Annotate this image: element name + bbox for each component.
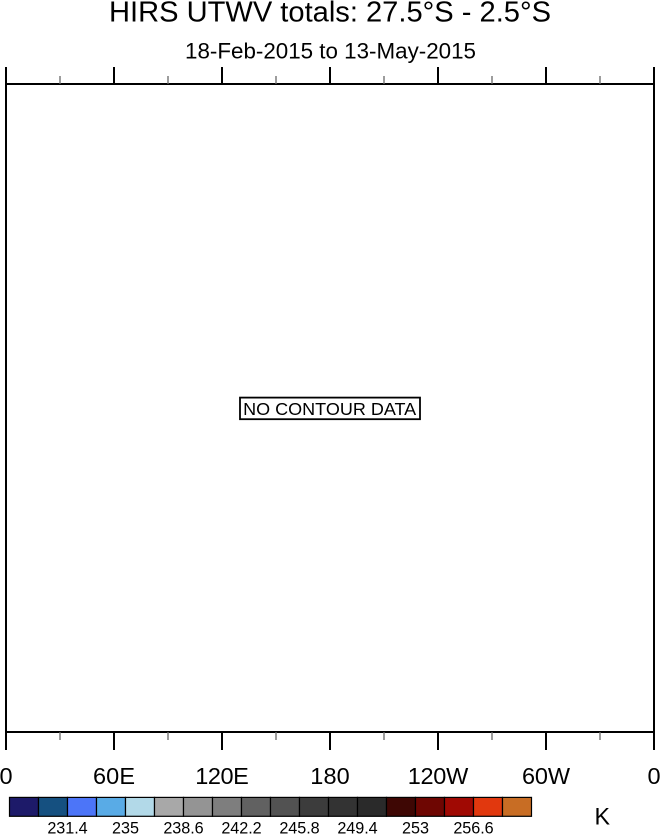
svg-text:K: K — [595, 804, 611, 831]
svg-text:180: 180 — [310, 763, 350, 789]
svg-text:256.6: 256.6 — [453, 820, 493, 834]
svg-text:0: 0 — [0, 763, 13, 789]
svg-text:NO CONTOUR DATA: NO CONTOUR DATA — [243, 399, 416, 419]
svg-text:0: 0 — [647, 763, 660, 789]
svg-text:HIRS UTWV totals: 27.5°S - 2.5: HIRS UTWV totals: 27.5°S - 2.5°S — [109, 0, 551, 29]
svg-text:245.8: 245.8 — [279, 820, 319, 834]
svg-text:235: 235 — [112, 820, 139, 834]
svg-text:238.6: 238.6 — [163, 820, 203, 834]
svg-text:18-Feb-2015 to 13-May-2015: 18-Feb-2015 to 13-May-2015 — [185, 39, 476, 64]
svg-text:60E: 60E — [93, 763, 135, 789]
svg-text:242.2: 242.2 — [221, 820, 261, 834]
svg-text:249.4: 249.4 — [337, 820, 377, 834]
svg-text:253: 253 — [402, 820, 429, 834]
svg-text:60W: 60W — [522, 763, 571, 789]
svg-text:120E: 120E — [195, 763, 249, 789]
svg-text:231.4: 231.4 — [47, 820, 87, 834]
svg-text:120W: 120W — [408, 763, 469, 789]
